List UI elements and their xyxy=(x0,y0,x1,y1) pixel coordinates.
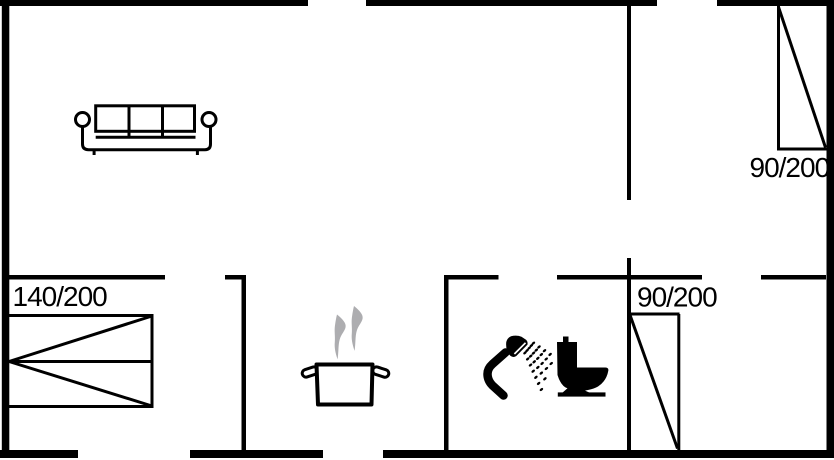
svg-text:90/200: 90/200 xyxy=(637,282,717,313)
svg-text:140/200: 140/200 xyxy=(13,281,108,312)
svg-text:90/200: 90/200 xyxy=(750,152,830,183)
